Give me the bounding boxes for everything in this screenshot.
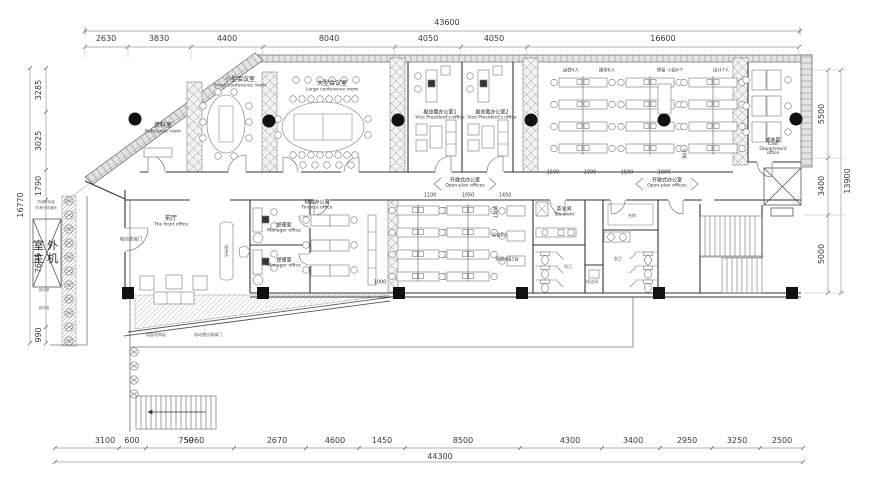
deco-stone	[239, 246, 250, 257]
vp-office-2	[467, 66, 508, 156]
front-office-furniture	[140, 222, 250, 304]
large-conference-table	[275, 77, 372, 169]
tea-room	[536, 202, 576, 237]
reception-desk	[220, 222, 233, 280]
storage-inner	[608, 204, 653, 225]
furniture	[140, 66, 791, 304]
male-wc	[535, 252, 563, 292]
female-wc	[604, 232, 658, 292]
exterior-stair	[136, 396, 216, 429]
elevator	[764, 168, 801, 216]
floor-plan: 43600 2630 3830 4400 8040 4050 4050 1660…	[0, 0, 878, 488]
outdoor-unit-box	[33, 219, 61, 287]
walls	[63, 53, 812, 300]
open-plan-middle	[389, 204, 525, 281]
interior-stair	[700, 216, 762, 293]
floor-plan-drawing	[0, 0, 878, 488]
open-plan-top	[551, 76, 746, 155]
finance-desks	[303, 215, 376, 285]
right-curtain-wall	[801, 55, 812, 167]
manager-offices	[253, 208, 277, 285]
cost-department-desks	[743, 70, 792, 142]
vp-office-1	[415, 66, 456, 156]
mop-sink	[589, 270, 599, 278]
label-chevrons	[434, 178, 698, 190]
